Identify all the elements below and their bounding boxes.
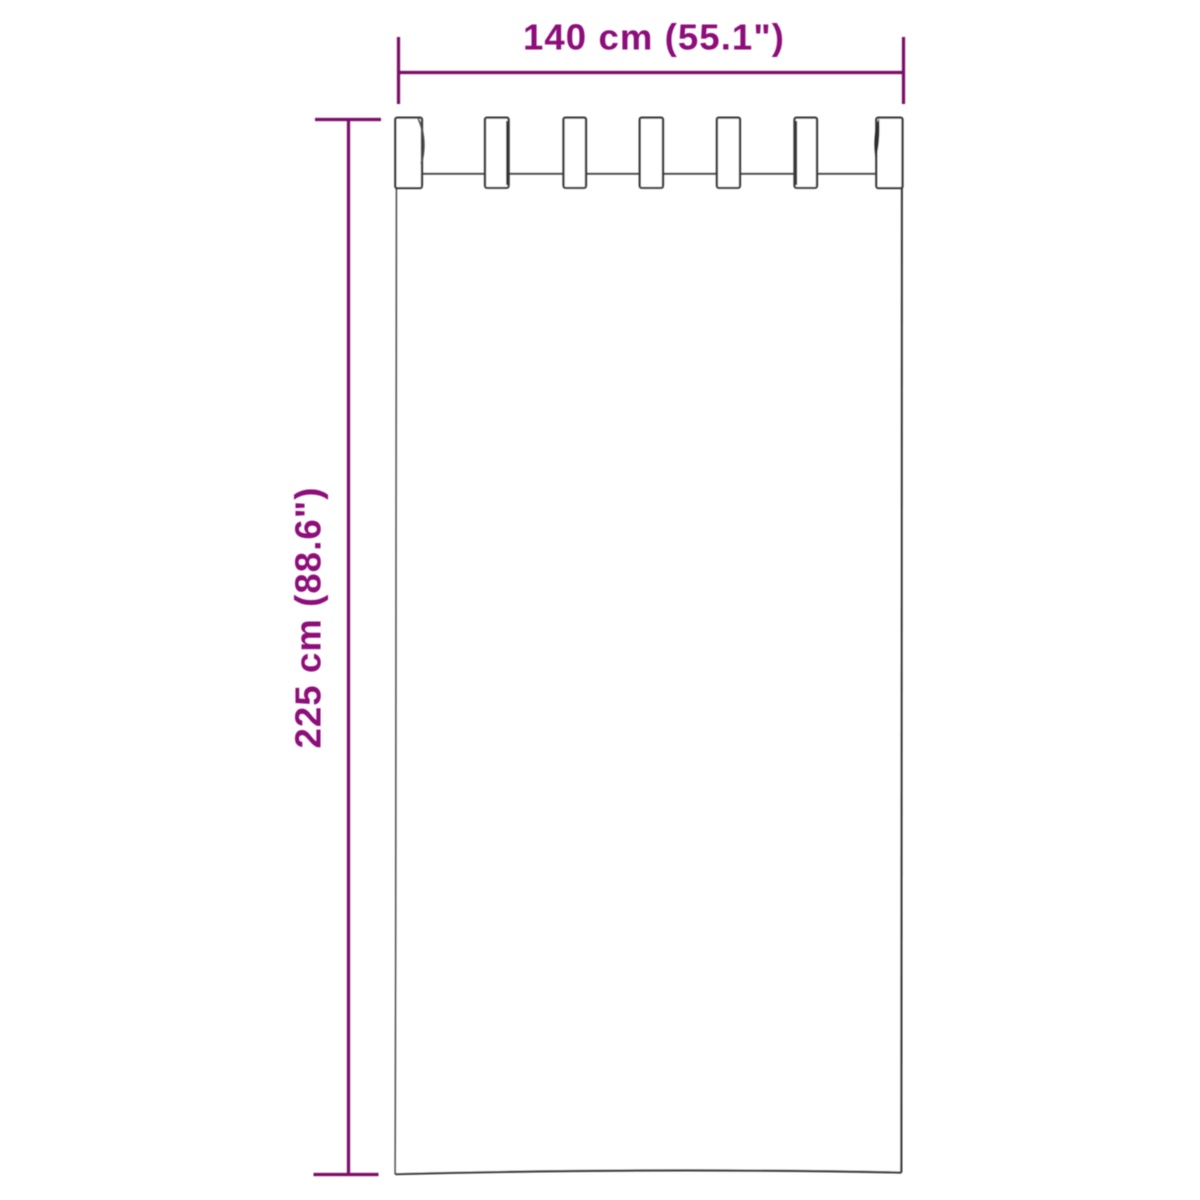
svg-text:225 cm (88.6"): 225 cm (88.6") — [288, 487, 329, 749]
svg-text:140 cm (55.1"): 140 cm (55.1") — [523, 17, 785, 58]
